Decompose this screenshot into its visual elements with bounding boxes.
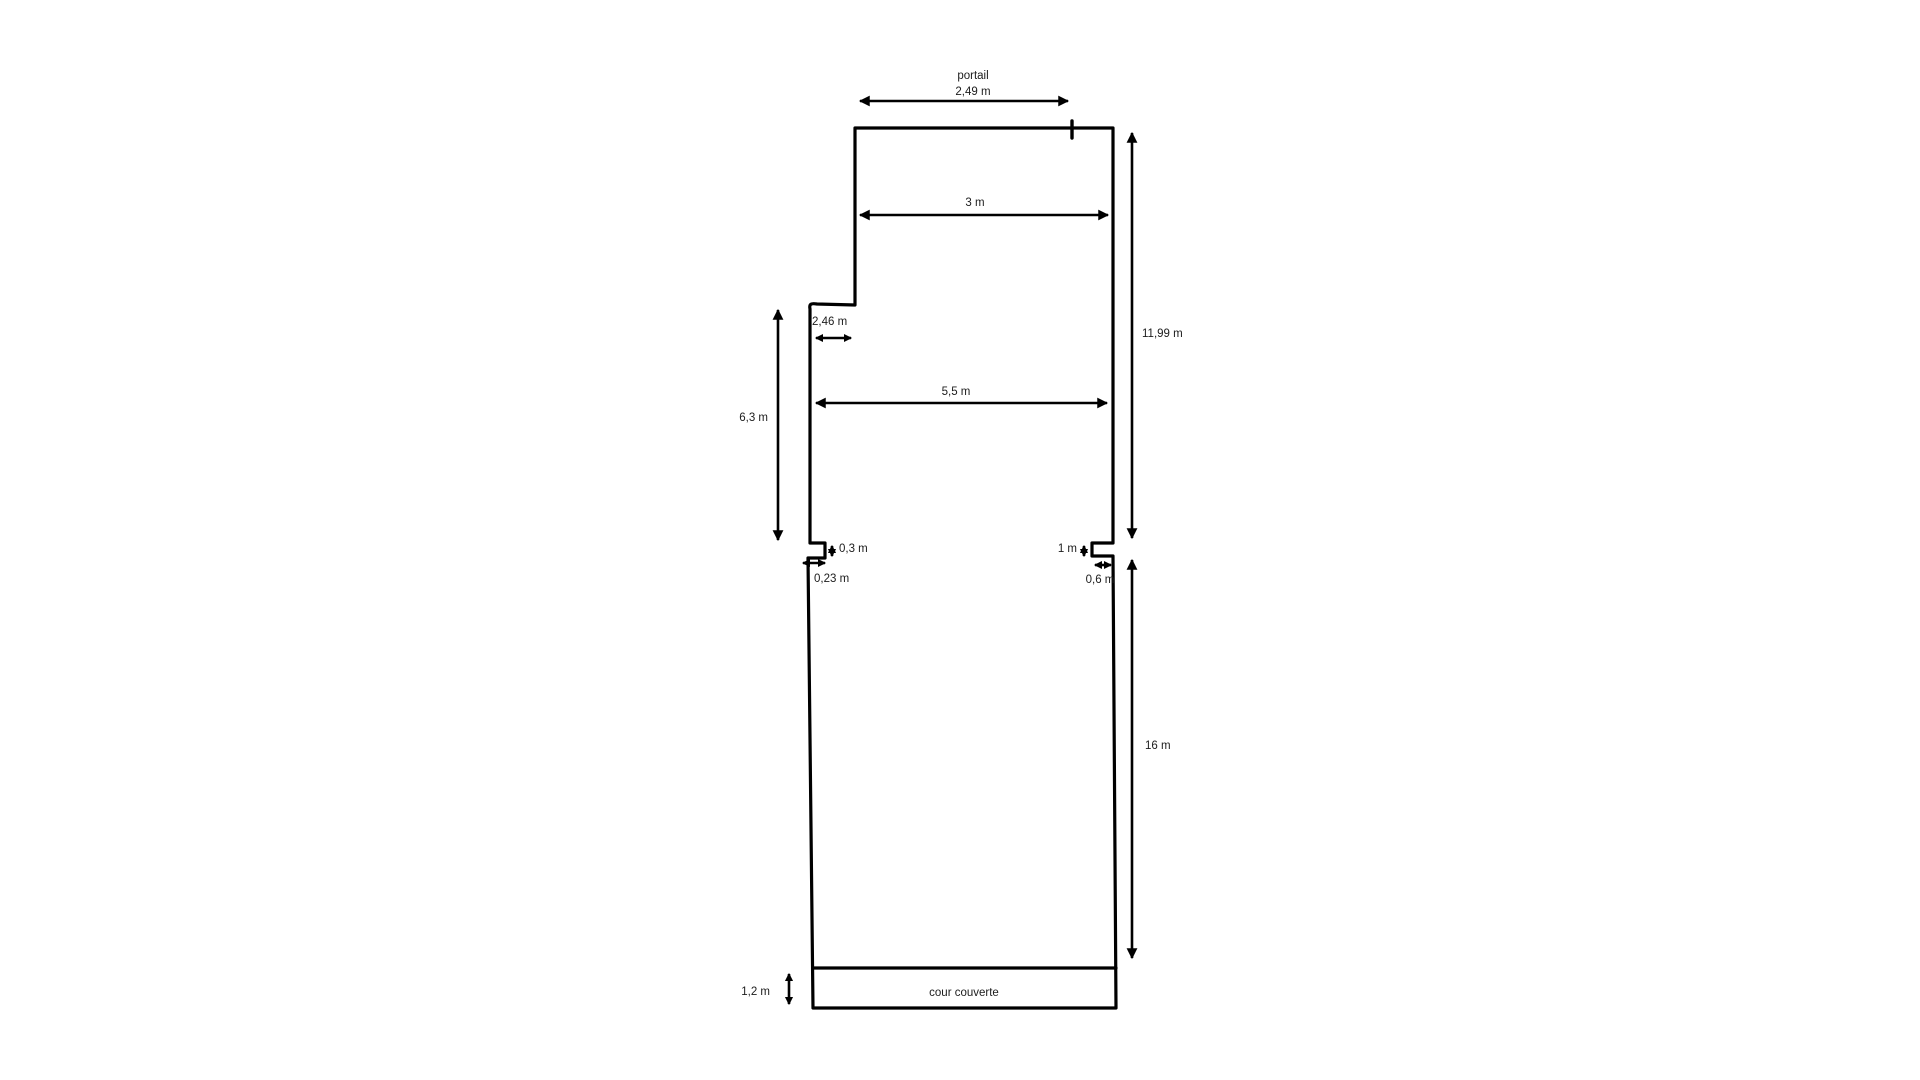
right-notch-height-label: 1 m (1058, 543, 1077, 555)
top-width-label: 3 m (965, 197, 984, 209)
dim-lower-right-height: 16 m (1132, 560, 1171, 958)
dim-upper-left-height: 6,3 m (739, 310, 778, 540)
dim-right-notch: 1 m 0,6 m (1058, 543, 1115, 586)
dim-gate: portail 2,49 m (860, 70, 1068, 101)
middle-width-label: 5,5 m (942, 386, 971, 398)
dim-top-width: 3 m (860, 197, 1108, 215)
step-width-label: 2,46 m (812, 316, 847, 328)
property-outline (808, 128, 1116, 1008)
drawing-canvas: portail 2,49 m 3 m 11,99 m 2,46 m 6,3 m … (0, 0, 1920, 1080)
covered-yard-name-label: cour couverte (929, 987, 999, 999)
lower-right-height-label: 16 m (1145, 740, 1171, 752)
gate-name-label: portail (957, 70, 988, 82)
covered-yard-height-label: 1,2 m (741, 986, 770, 998)
left-notch-width-label: 0,23 m (814, 573, 849, 585)
left-notch-height-label: 0,3 m (839, 543, 868, 555)
dim-covered-yard: 1,2 m cour couverte (741, 974, 999, 1004)
right-notch-width-label: 0,6 m (1086, 574, 1115, 586)
dim-upper-right-height: 11,99 m (1132, 133, 1183, 538)
dim-left-notch: 0,3 m 0,23 m (803, 543, 868, 585)
upper-right-height-label: 11,99 m (1142, 328, 1183, 340)
upper-left-height-label: 6,3 m (739, 412, 768, 424)
dim-middle-width: 5,5 m (816, 386, 1107, 403)
gate-width-label: 2,49 m (955, 86, 990, 98)
dim-step-width: 2,46 m (812, 316, 851, 338)
floor-plan-svg: portail 2,49 m 3 m 11,99 m 2,46 m 6,3 m … (0, 0, 1920, 1080)
